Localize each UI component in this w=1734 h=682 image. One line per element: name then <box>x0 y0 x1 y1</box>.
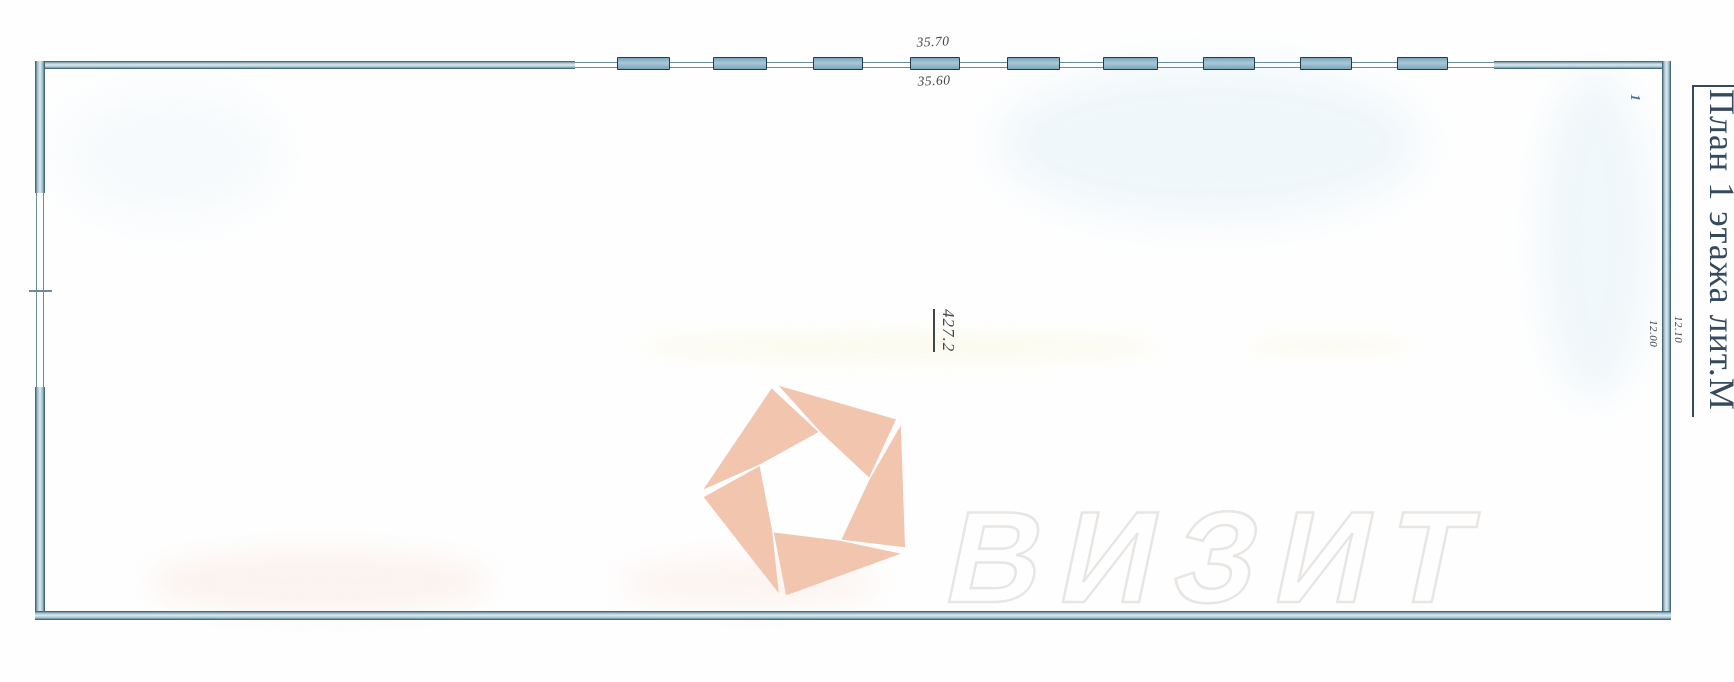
window-segment <box>813 57 863 70</box>
scan-artifact <box>1540 70 1650 400</box>
window-segment <box>910 57 960 70</box>
watermark-text: ВИЗИТ <box>936 492 1505 622</box>
dimension-right-inner: 12.00 <box>1647 320 1659 347</box>
wall-top-right-segment <box>1494 61 1671 69</box>
floor-plan-page: ВИЗИТ 35.70 35.60 12.10 12.00 427.2 1 Пл… <box>0 0 1734 682</box>
wall-top-left-segment <box>35 61 575 69</box>
window-segment <box>1007 57 1060 70</box>
room-area-label: 427.2 <box>933 309 958 352</box>
dimension-top-outer: 35.70 <box>901 33 966 51</box>
window-segment <box>1397 57 1448 70</box>
scan-artifact <box>150 552 490 612</box>
scan-artifact <box>1000 68 1420 218</box>
window-segment <box>1300 57 1352 70</box>
aperture-pentagon-logo <box>690 367 935 612</box>
page-title: План 1 этажа лит.М <box>1692 85 1734 417</box>
window-segment <box>617 57 670 70</box>
scan-artifact <box>1250 338 1410 354</box>
room-number-label: 1 <box>1626 94 1642 101</box>
wall-left-bottom-segment <box>35 387 45 620</box>
scan-artifact <box>60 90 280 220</box>
dimension-top-inner: 35.60 <box>902 72 967 90</box>
wall-bottom <box>35 611 1671 620</box>
window-segment <box>1103 57 1158 70</box>
dimension-right-outer: 12.10 <box>1672 316 1684 343</box>
opening-tick-left <box>29 290 52 292</box>
window-segment <box>713 57 767 70</box>
wall-right <box>1662 61 1671 620</box>
scan-artifact <box>640 334 1160 360</box>
wall-left-top-segment <box>35 61 45 193</box>
window-segment <box>1203 57 1255 70</box>
